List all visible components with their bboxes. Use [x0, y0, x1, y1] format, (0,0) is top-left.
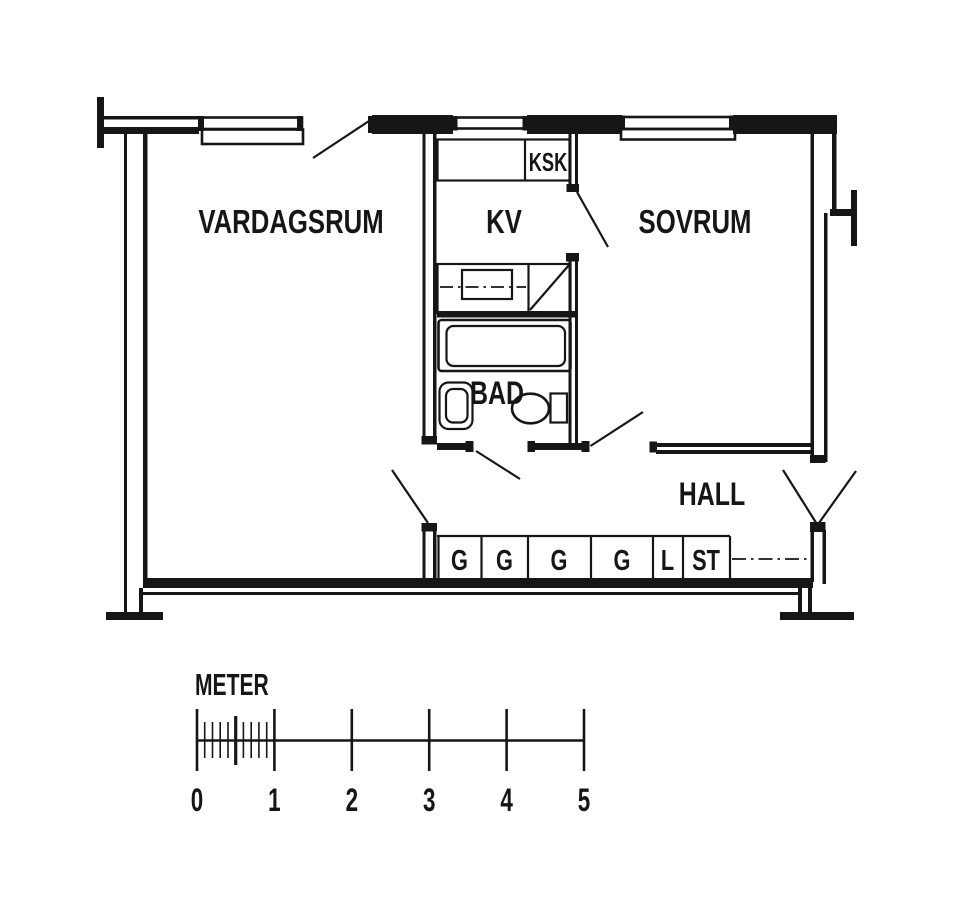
closet-label-1: G	[496, 545, 513, 577]
bedroom-window	[622, 117, 733, 129]
kitchen-sink	[462, 270, 512, 299]
partition-lr-kv-line2	[433, 133, 437, 438]
top-wall-a-inner	[102, 127, 199, 134]
toilet-tank	[551, 394, 568, 423]
livingroom-window-cap-right	[297, 116, 303, 131]
sovrum-bottom-wall-line1	[656, 443, 813, 447]
party-wall-bar	[851, 190, 857, 246]
bad-bottom-wall-left	[437, 443, 468, 450]
room-label-vardagsrum: VARDAGSRUM	[198, 204, 383, 241]
closet-row: G G G G L ST	[437, 536, 811, 580]
partition-kv-sovrum-lower2	[575, 261, 578, 446]
top-wall-b	[372, 115, 453, 134]
right-wall-inner-upper	[811, 133, 815, 455]
partition-lr-kv-line1	[423, 133, 426, 438]
windows	[198, 116, 735, 159]
bottom-wall-thin	[143, 592, 802, 595]
entrance-door-swing-out	[818, 471, 857, 525]
right-wall-outer-upper	[832, 115, 837, 214]
hall-jamb-line1	[423, 531, 426, 583]
bathtub-outer	[439, 320, 571, 371]
livingroom-window	[201, 118, 302, 130]
hall-jamb-line2	[433, 531, 437, 583]
closet-label-3: G	[614, 545, 631, 577]
entrance-door-swing-in	[783, 470, 818, 525]
bedroom-window-cap-left	[619, 116, 625, 131]
scale-num-1: 1	[268, 782, 280, 818]
livingroom-window-cap-left	[198, 116, 204, 131]
room-label-hall: HALL	[679, 477, 746, 513]
footing-bottom-left-line	[139, 588, 143, 614]
party-wall-stub	[830, 209, 854, 216]
bad-door-swing	[476, 451, 520, 479]
room-label-bad: BAD	[470, 376, 524, 412]
footing-bottom-left-bar	[106, 612, 163, 620]
left-wall-inner-line	[143, 131, 148, 588]
scale-bar: METER 0 1 2 3 4 5	[191, 667, 590, 818]
stove-diagonal	[530, 265, 569, 310]
partition-kv-sovrum-upper2	[575, 133, 578, 184]
entrance-jamb-top	[810, 455, 826, 463]
bathtub-inner	[447, 326, 566, 366]
closet-label-0: G	[451, 545, 468, 577]
scale-num-4: 4	[500, 782, 513, 818]
kitchen-window-cap-left	[453, 116, 458, 131]
right-wall-inner-lower	[811, 530, 815, 582]
washbasin-bowl	[446, 389, 468, 423]
closet-label-5: ST	[692, 545, 720, 577]
closet-label-2: G	[551, 545, 568, 577]
room-labels: VARDAGSRUM KV SOVRUM BAD HALL KSK	[198, 148, 751, 513]
partition-kv-sovrum-cap1	[567, 184, 580, 192]
floorplan-page: { "rooms": { "vardagsrum": "VARDAGSRUM",…	[0, 0, 961, 900]
right-wall-outer-lower	[823, 530, 827, 584]
partition-kv-sovrum-cap2	[566, 253, 579, 262]
left-wall-outer-line	[124, 131, 127, 616]
refrigerator-label: KSK	[529, 148, 567, 177]
exterior-walls	[97, 97, 857, 620]
hall-jamb-cap	[422, 523, 438, 532]
balcony-door-jamb	[368, 116, 373, 133]
sovrum-bottom-wall-line2	[656, 450, 813, 454]
sovrum-door-swing	[591, 412, 644, 446]
balcony-door-swing	[313, 121, 369, 158]
bedroom-window-cap-right	[729, 116, 735, 131]
sovrum-bottom-cap	[650, 442, 658, 453]
kitchen-window-cap-right	[523, 116, 528, 131]
bad-bottom-cap-right	[582, 441, 590, 452]
scale-bar-title: METER	[195, 667, 269, 702]
scale-num-0: 0	[191, 782, 203, 818]
scale-num-3: 3	[423, 782, 435, 818]
bottom-wall-thick	[143, 578, 813, 588]
bad-bottom-wall-right	[534, 443, 582, 450]
kitchen-lower-counter	[438, 264, 571, 313]
footing-bottom-right-bar	[780, 612, 854, 620]
footing-bottom-right-line1	[798, 588, 802, 614]
scale-numbers: 0 1 2 3 4 5	[191, 782, 590, 818]
room-label-sovrum: SOVRUM	[639, 204, 752, 241]
partition-lr-kv-cap	[422, 436, 438, 445]
footing-top-left	[97, 97, 104, 148]
closet-labels: G G G G L ST	[451, 545, 720, 577]
scale-num-2: 2	[346, 782, 358, 818]
interior-walls	[422, 133, 826, 583]
right-wall-outer-mid	[824, 213, 828, 462]
top-wall-d	[733, 115, 837, 134]
bathroom-fixtures	[439, 320, 571, 429]
door-swings	[392, 192, 856, 525]
footing-bottom-right-line2	[808, 588, 812, 614]
livingroom-door-swing	[392, 470, 428, 523]
room-label-kv: KV	[486, 204, 522, 241]
bad-bottom-cap-left	[466, 441, 474, 452]
closet-label-4: L	[661, 545, 674, 577]
top-wall-a-outer	[102, 116, 199, 120]
floor-plan-drawing: G G G G L ST VARDAGSRUM KV SOVRUM BAD HA…	[0, 0, 961, 900]
livingroom-radiator	[202, 130, 303, 145]
kv-sovrum-door-swing	[577, 192, 608, 247]
top-wall-c	[527, 115, 622, 134]
kitchen-window	[455, 118, 525, 129]
bedroom-radiator	[621, 129, 735, 140]
bad-bottom-cap-mid	[528, 441, 536, 452]
scale-num-5: 5	[578, 782, 590, 818]
